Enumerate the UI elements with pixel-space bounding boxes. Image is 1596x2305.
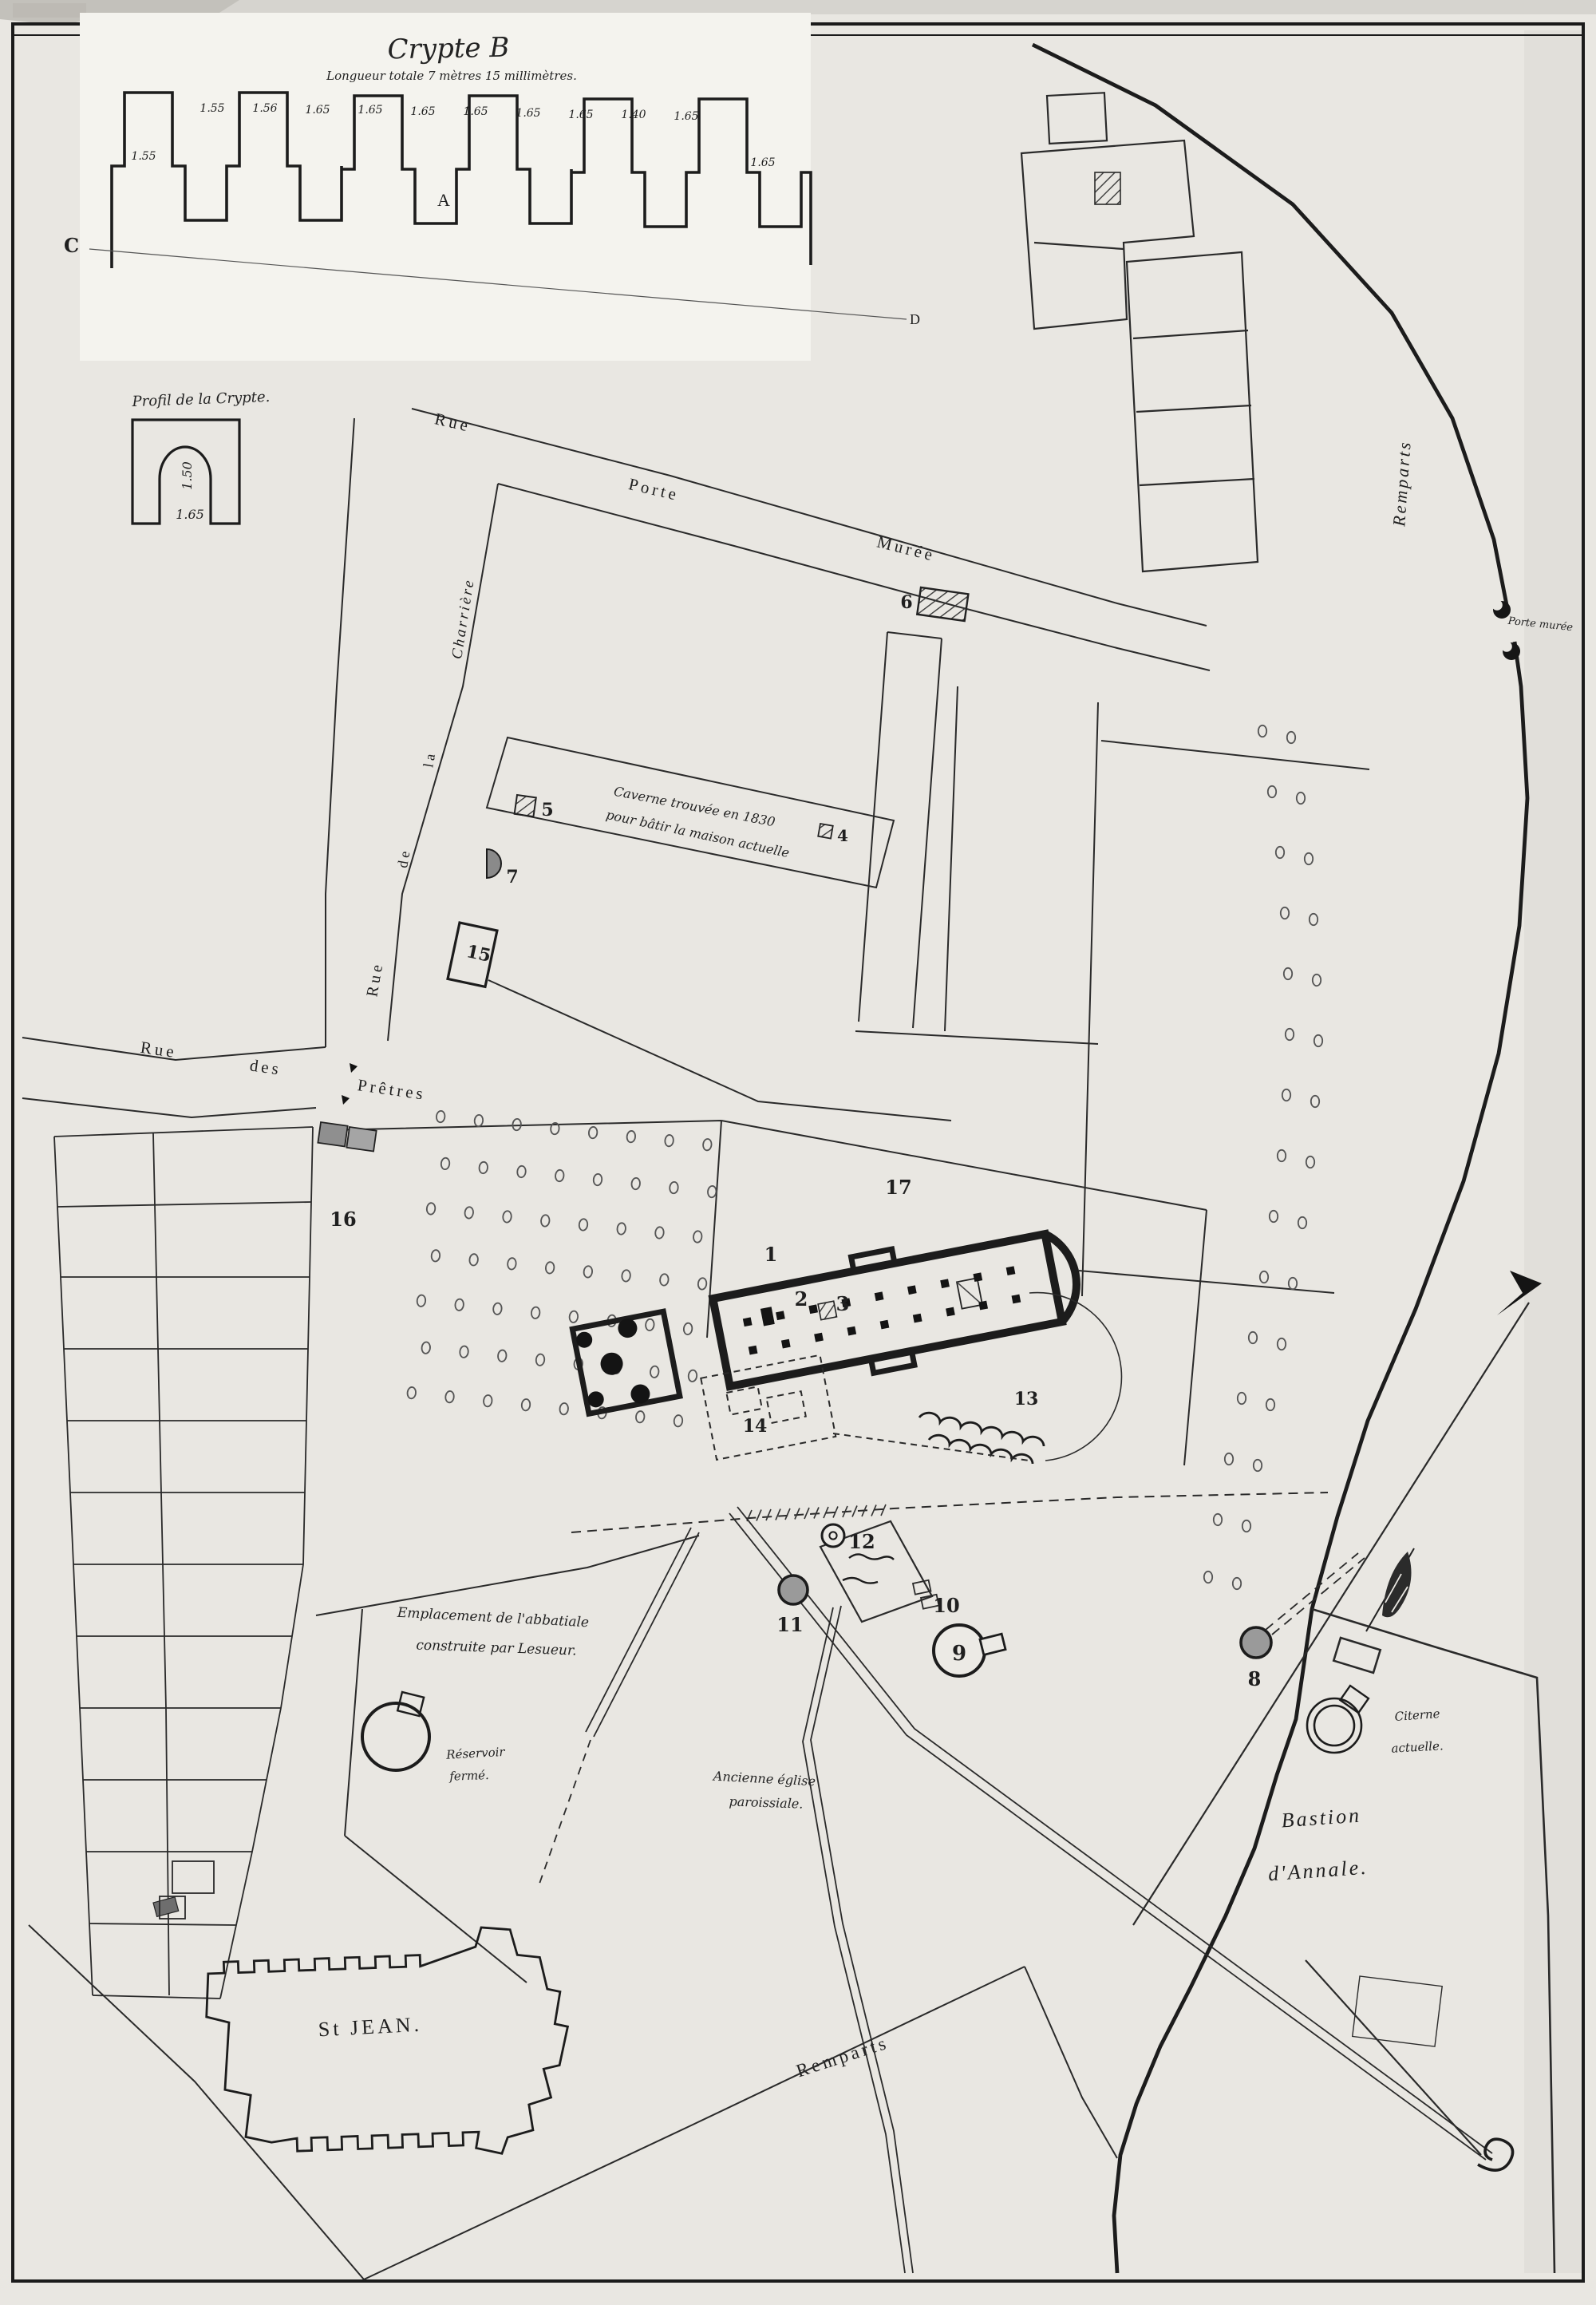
pillar xyxy=(776,1311,785,1320)
street-label: la xyxy=(420,749,438,769)
abbey-plan-map: Crypte B Longueur totale 7 mètres 15 mil… xyxy=(0,0,1596,2305)
measurement-value: 1.65 xyxy=(516,107,540,120)
marker-8: 8 xyxy=(1248,1667,1262,1690)
pillar xyxy=(880,1320,890,1330)
pillar xyxy=(973,1272,982,1282)
measurement-value: 1.65 xyxy=(305,104,330,117)
gate-crescent-hollow xyxy=(1491,599,1503,611)
measurement-value: 1.65 xyxy=(410,105,435,118)
marker-6-ruin-icon xyxy=(917,587,968,621)
paper-top-edge xyxy=(0,0,1596,14)
marker-9: 9 xyxy=(952,1642,966,1666)
marker-10: 10 xyxy=(933,1594,959,1617)
marker-7: 7 xyxy=(506,867,518,888)
crypt-plan-label-a: A xyxy=(437,190,453,210)
small-well-ring xyxy=(822,1524,844,1547)
pillar xyxy=(940,1279,950,1288)
marker-4: 4 xyxy=(837,826,848,845)
measurement-value: 1.65 xyxy=(674,110,698,123)
paper-tear-2 xyxy=(13,3,86,18)
marker-1: 1 xyxy=(764,1243,778,1266)
marker-14: 14 xyxy=(743,1416,768,1437)
marker-11-well-icon xyxy=(779,1576,808,1604)
marker-11: 11 xyxy=(776,1613,803,1636)
ancienne-note-2: paroissiale. xyxy=(729,1793,804,1811)
marker-17: 17 xyxy=(885,1176,911,1199)
hatched-altar xyxy=(818,1301,836,1319)
pillar xyxy=(978,1301,988,1311)
reservoir-note-2: fermé. xyxy=(448,1768,489,1784)
pillar xyxy=(808,1304,818,1314)
citerne-note-2: actuelle. xyxy=(1391,1738,1444,1755)
crypt-subtitle: Longueur totale 7 mètres 15 millimètres. xyxy=(326,69,577,83)
street-label: de xyxy=(394,847,413,869)
measurement-value: 1.65 xyxy=(463,105,488,118)
measurement-value: 1.55 xyxy=(199,102,224,115)
section-label-d: D xyxy=(910,311,923,327)
marker-8-well-icon xyxy=(1241,1627,1271,1658)
building-hatched xyxy=(1095,172,1120,204)
measurement-value: 1.55 xyxy=(131,150,156,163)
measurement-value: 1.65 xyxy=(358,104,382,117)
marker-16: 16 xyxy=(330,1208,356,1231)
marker-4-ruin-icon xyxy=(818,824,833,839)
measurement-value: 1.40 xyxy=(621,109,646,121)
pillar xyxy=(907,1285,917,1295)
pillar xyxy=(1006,1266,1016,1275)
pillar xyxy=(814,1333,824,1342)
gray-block xyxy=(346,1127,376,1151)
profile-height-value: 1.50 xyxy=(180,461,195,490)
pillar xyxy=(743,1317,753,1326)
marker-5: 5 xyxy=(541,800,553,820)
marker-6: 6 xyxy=(900,592,912,613)
measurement-value: 1.65 xyxy=(750,156,775,169)
crypt-section-inset: Crypte B Longueur totale 7 mètres 15 mil… xyxy=(64,13,923,361)
pillar xyxy=(1012,1295,1021,1304)
pillar xyxy=(749,1346,758,1355)
marker-2: 2 xyxy=(795,1287,808,1311)
measurement-value: 1.56 xyxy=(252,102,277,115)
pillar xyxy=(946,1307,955,1317)
marker-3: 3 xyxy=(836,1292,850,1315)
crypt-title: Crypte B xyxy=(387,32,510,66)
gate-crescent-hollow xyxy=(1501,641,1512,652)
marker-13: 13 xyxy=(1014,1389,1039,1409)
section-label-c: C xyxy=(64,234,79,257)
inset-paper xyxy=(80,13,811,361)
measurement-value: 1.65 xyxy=(568,109,593,121)
gray-block xyxy=(318,1122,347,1146)
marker-12: 12 xyxy=(848,1530,875,1553)
pillar xyxy=(781,1339,791,1349)
marker-5-ruin-icon xyxy=(515,795,536,816)
pillar xyxy=(875,1291,884,1301)
profile-width-value: 1.65 xyxy=(176,507,204,522)
pillar xyxy=(847,1326,856,1336)
pillar xyxy=(913,1314,922,1323)
paper-shadow xyxy=(1524,30,1583,2273)
